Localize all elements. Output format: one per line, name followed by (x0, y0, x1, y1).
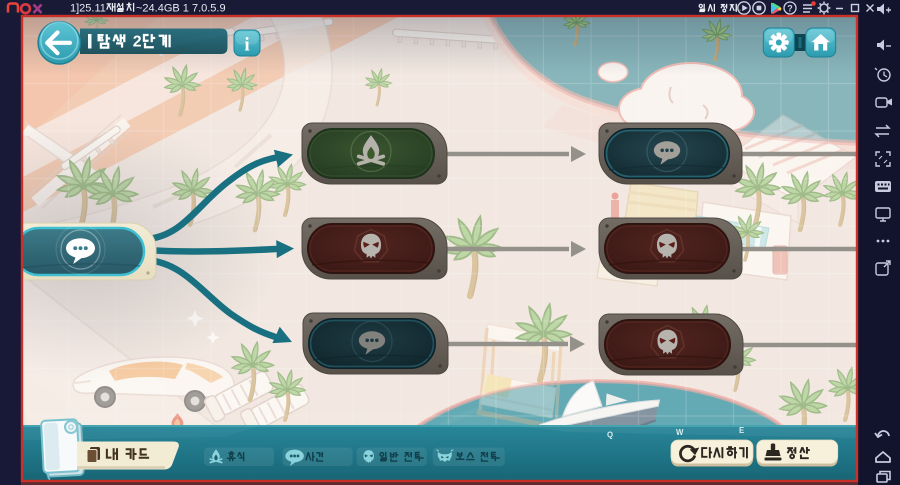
svg-text:E: E (739, 426, 744, 435)
svg-text:Q: Q (607, 431, 613, 440)
svg-text:i: i (244, 35, 249, 56)
svg-text:?: ? (787, 3, 793, 13)
svg-text:1]25.11: 1]25.11 (70, 3, 106, 15)
svg-text:~24.4GB 1 7.0.5.9: ~24.4GB 1 7.0.5.9 (136, 3, 226, 15)
svg-text:2: 2 (133, 33, 142, 50)
svg-text:W: W (676, 428, 684, 437)
